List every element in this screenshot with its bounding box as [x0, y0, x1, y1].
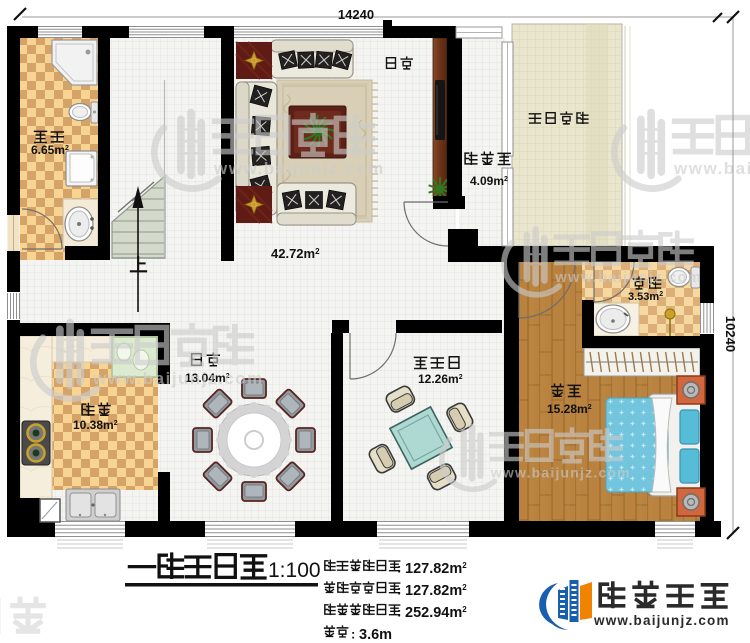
svg-text:3.6m: 3.6m — [359, 627, 392, 643]
svg-text:3.53m2: 3.53m2 — [628, 291, 663, 303]
svg-text:10.38m2: 10.38m2 — [73, 418, 118, 432]
svg-text:14240: 14240 — [338, 7, 374, 22]
svg-text:127.82m2: 127.82m2 — [405, 561, 467, 577]
svg-text::: : — [397, 583, 401, 598]
svg-text::: : — [351, 627, 355, 642]
svg-text:www.baijunjz.com: www.baijunjz.com — [92, 369, 264, 388]
svg-text:www.baijunjz.com: www.baijunjz.com — [673, 159, 750, 178]
svg-text:10240: 10240 — [723, 316, 738, 352]
svg-text:www.baijunjz.com: www.baijunjz.com — [490, 464, 631, 480]
svg-text:1:100: 1:100 — [268, 559, 321, 582]
svg-text:127.82m2: 127.82m2 — [405, 583, 467, 599]
svg-text:42.72m2: 42.72m2 — [271, 246, 320, 261]
svg-text::: : — [397, 561, 401, 576]
svg-text:12.26m2: 12.26m2 — [418, 372, 463, 386]
svg-text:4.09m2: 4.09m2 — [470, 174, 508, 188]
svg-text:15.28m2: 15.28m2 — [547, 402, 592, 416]
svg-text:www.baijunjz.com: www.baijunjz.com — [213, 159, 385, 178]
svg-text:6.65m2: 6.65m2 — [31, 143, 69, 157]
svg-text:www.baijunjz.com: www.baijunjz.com — [554, 270, 702, 286]
svg-text:www.baijunjz.com: www.baijunjz.com — [593, 613, 730, 628]
svg-text::: : — [397, 605, 401, 620]
svg-text:252.94m2: 252.94m2 — [405, 605, 467, 621]
